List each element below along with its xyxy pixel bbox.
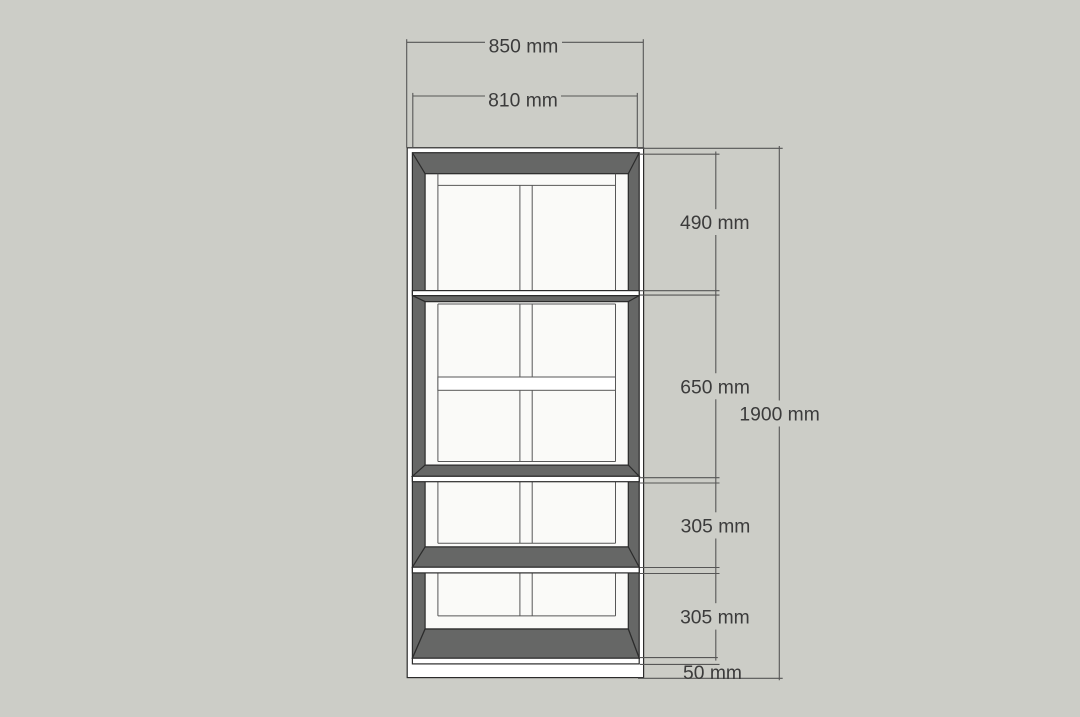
svg-text:810 mm: 810 mm xyxy=(488,91,558,112)
svg-text:305 mm: 305 mm xyxy=(681,516,751,537)
svg-text:305 mm: 305 mm xyxy=(680,607,750,628)
svg-text:490 mm: 490 mm xyxy=(680,213,750,234)
svg-text:650 mm: 650 mm xyxy=(680,377,750,398)
svg-text:850 mm: 850 mm xyxy=(489,36,559,57)
svg-text:50 mm: 50 mm xyxy=(683,663,742,684)
svg-text:1900 mm: 1900 mm xyxy=(739,405,819,426)
